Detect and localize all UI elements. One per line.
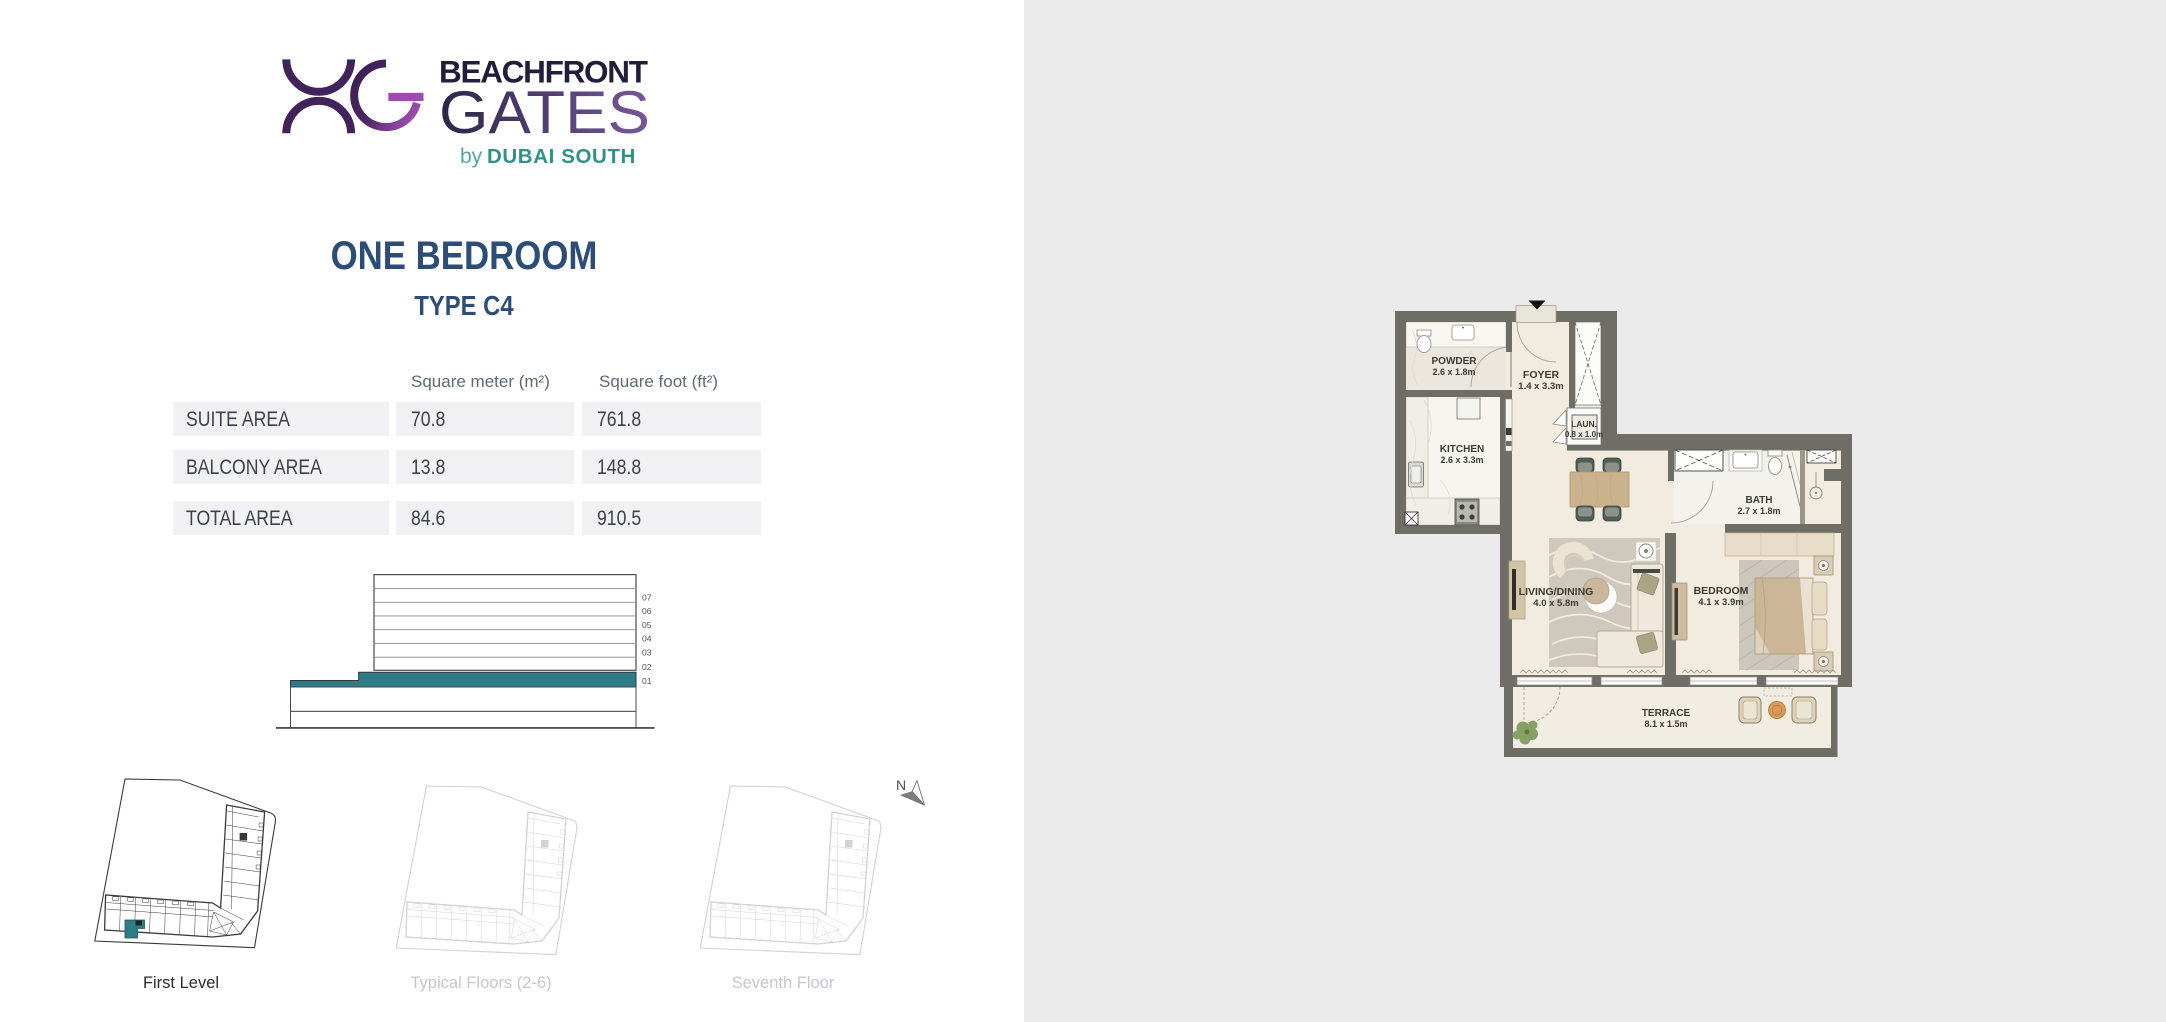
svg-text:8.1 x 1.5m: 8.1 x 1.5m bbox=[1644, 719, 1687, 729]
svg-text:4.0 x 5.8m: 4.0 x 5.8m bbox=[1533, 598, 1578, 609]
svg-text:0.8 x 1.0m: 0.8 x 1.0m bbox=[1565, 430, 1603, 439]
svg-text:POWDER: POWDER bbox=[1432, 356, 1478, 367]
svg-text:06: 06 bbox=[642, 606, 652, 616]
svg-text:1.4 x 3.3m: 1.4 x 3.3m bbox=[1518, 381, 1563, 392]
svg-text:by: by bbox=[460, 145, 483, 168]
svg-text:03: 03 bbox=[642, 648, 652, 658]
svg-text:07: 07 bbox=[642, 593, 652, 603]
svg-text:LAUN.: LAUN. bbox=[1571, 419, 1597, 429]
svg-text:04: 04 bbox=[642, 634, 652, 644]
svg-text:BATH: BATH bbox=[1745, 495, 1772, 506]
svg-text:2.7 x 1.8m: 2.7 x 1.8m bbox=[1737, 506, 1780, 516]
svg-text:BEDROOM: BEDROOM bbox=[1694, 585, 1749, 597]
svg-text:02: 02 bbox=[642, 662, 652, 672]
svg-text:N: N bbox=[896, 777, 906, 793]
svg-text:GATES: GATES bbox=[439, 79, 650, 146]
svg-text:KITCHEN: KITCHEN bbox=[1440, 444, 1484, 455]
svg-text:FOYER: FOYER bbox=[1523, 369, 1560, 381]
svg-text:DUBAI SOUTH: DUBAI SOUTH bbox=[487, 145, 636, 168]
svg-text:2.6 x 1.8m: 2.6 x 1.8m bbox=[1432, 367, 1475, 377]
svg-text:4.1 x 3.9m: 4.1 x 3.9m bbox=[1698, 597, 1743, 608]
svg-text:LIVING/DINING: LIVING/DINING bbox=[1519, 586, 1594, 598]
svg-text:TERRACE: TERRACE bbox=[1642, 708, 1691, 719]
svg-text:05: 05 bbox=[642, 620, 652, 630]
svg-text:2.6 x 3.3m: 2.6 x 3.3m bbox=[1440, 455, 1483, 465]
svg-text:01: 01 bbox=[642, 676, 652, 686]
